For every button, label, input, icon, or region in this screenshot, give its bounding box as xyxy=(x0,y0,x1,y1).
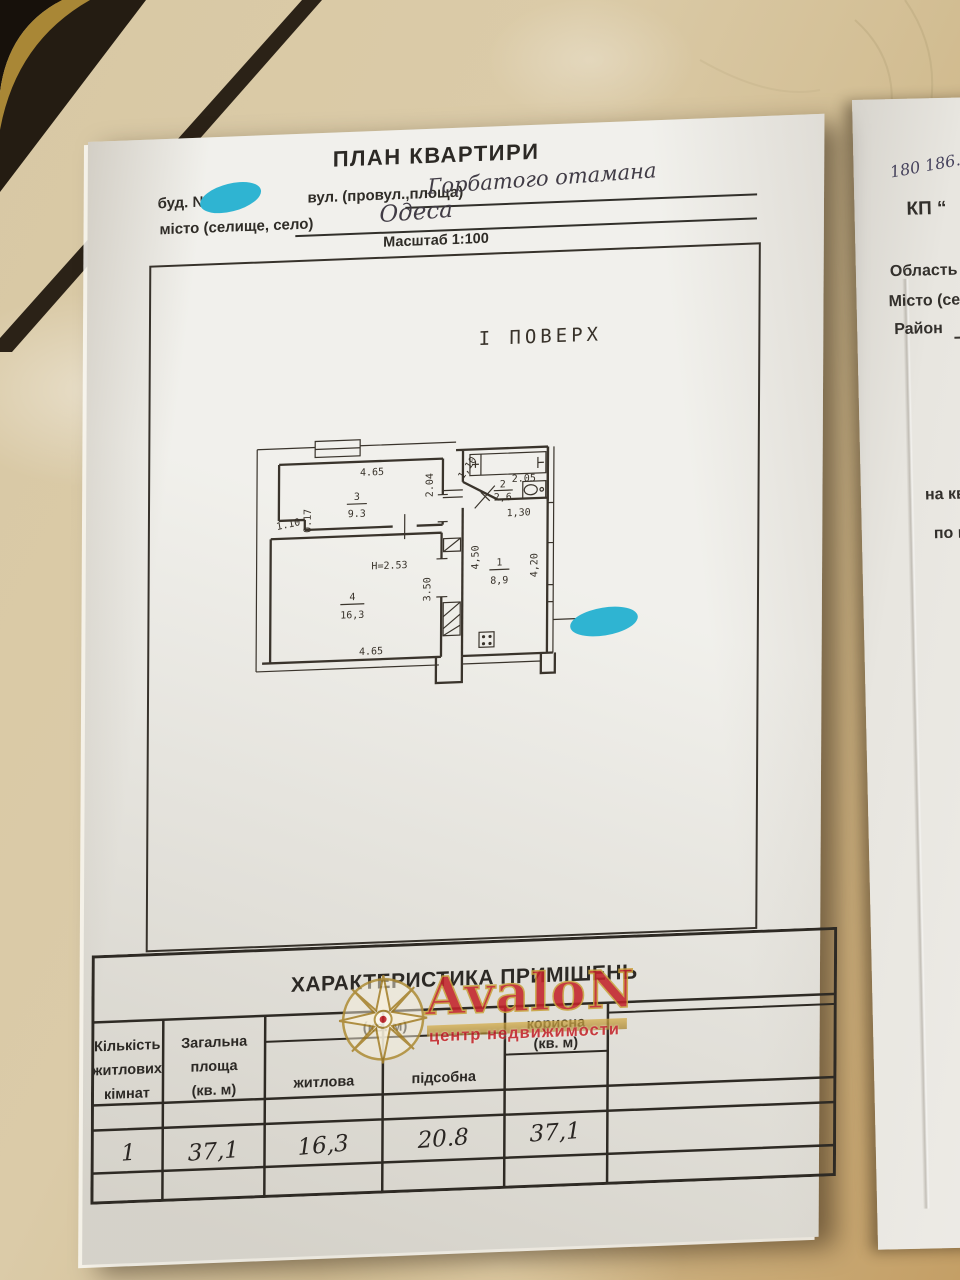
col1-header-line2: житлових xyxy=(91,1061,162,1080)
dim-label: 1,10 xyxy=(456,455,479,481)
handwritten-file-number: 180 186. xyxy=(888,150,960,181)
chimney-stubs xyxy=(436,652,555,683)
stove-burner xyxy=(482,642,485,645)
col3-header: житлова xyxy=(292,1073,355,1091)
floor-plan-drawing: І ПОВЕРХ xyxy=(148,244,759,950)
paper-crease xyxy=(902,279,930,1209)
stove-burner xyxy=(482,635,485,638)
toilet-bowl xyxy=(524,485,537,496)
handwritten-city: Одеса xyxy=(379,197,453,228)
bathtub-fittings xyxy=(472,452,544,476)
col5-header-line1: корисна xyxy=(527,1015,587,1033)
col5-header-line2: (кв. м) xyxy=(534,1035,579,1053)
col1-header-line3: кімнат xyxy=(104,1085,150,1103)
window-room3-midline xyxy=(315,448,360,450)
dim-label: 3.50 xyxy=(422,577,433,602)
room2-number: 2 xyxy=(500,479,506,490)
room2-fraction-line xyxy=(494,490,513,491)
on-apartment-label: на ква xyxy=(925,485,960,504)
district-underline xyxy=(954,335,960,339)
col1-header-line1: Кількість xyxy=(94,1037,160,1056)
toilet-valve xyxy=(540,487,544,491)
district-label: Район xyxy=(894,320,943,339)
city-underline xyxy=(295,217,757,237)
room4-fraction-line xyxy=(340,604,364,605)
stove xyxy=(479,632,494,648)
city-field-label: місто (селище, село) xyxy=(159,215,313,238)
scale-label: Масштаб 1:100 xyxy=(383,231,489,251)
shaft-column-wall xyxy=(462,508,463,656)
vent-shaft-2-hatch xyxy=(443,602,460,636)
floor-label: І ПОВЕРХ xyxy=(479,323,602,350)
characteristics-table: ХАРАКТЕРИСТИКА ПРИМІШЕНЬ Кількість житло… xyxy=(90,927,837,1205)
plan-border-box: І ПОВЕРХ xyxy=(146,242,761,952)
dim-label: 2.04 xyxy=(425,473,436,498)
group-header: (кв. м) xyxy=(363,1018,408,1036)
marble-vein-2 xyxy=(700,60,820,92)
outer-boundary-lines xyxy=(256,439,542,672)
dim-label: 2.05 xyxy=(512,473,536,485)
col2-header-line1: Загальна xyxy=(181,1034,248,1053)
stove-burner xyxy=(488,642,491,645)
room4-number: 4 xyxy=(349,592,355,603)
room1-number: 1 xyxy=(496,557,502,568)
dim-label: 4,20 xyxy=(529,553,540,578)
table-title: ХАРАКТЕРИСТИКА ПРИМІШЕНЬ xyxy=(291,961,638,997)
room1-fraction-line xyxy=(489,569,509,570)
room4-area: 16,3 xyxy=(340,610,364,622)
value-useful-area: 37,1 xyxy=(529,1118,581,1148)
room4-door-marks xyxy=(436,559,447,597)
value-rooms: 1 xyxy=(121,1140,136,1167)
room2-area: 2,6 xyxy=(494,492,512,504)
city-label: Місто (се xyxy=(888,292,960,312)
value-utility-area: 20.8 xyxy=(416,1124,469,1154)
on-street-label: по ву xyxy=(934,524,960,543)
value-living-area: 16,3 xyxy=(297,1130,349,1161)
marker-blob-entrance xyxy=(569,602,640,641)
room1-area: 8,9 xyxy=(490,575,508,587)
photo-of-floor-plan-document: 180 186. КП “ Область Місто (се Район на… xyxy=(0,0,960,1280)
region-label: Область xyxy=(890,262,958,282)
dim-label: 4.65 xyxy=(360,467,384,479)
room3-area: 9.3 xyxy=(348,509,366,521)
dim-label: Н=2.53 xyxy=(371,560,407,572)
corridor-threshold xyxy=(443,490,463,498)
dim-label: 1,30 xyxy=(507,507,531,519)
vent-shaft-1-hatch xyxy=(444,538,461,552)
room3-fraction-line xyxy=(347,504,367,505)
floor-plan-document: ПЛАН КВАРТИРИ буд. № вул. (провул.,площа… xyxy=(82,114,824,1265)
marker-blob-building-number xyxy=(197,176,263,218)
col2-header-line2: площа xyxy=(190,1058,238,1076)
kp-heading: КП “ xyxy=(906,198,947,221)
col2-header-line3: (кв. м) xyxy=(192,1082,237,1100)
stove-burner xyxy=(488,635,491,638)
room3-number: 3 xyxy=(354,492,360,503)
dim-label: 0.17 xyxy=(303,509,314,534)
dim-label: 4.65 xyxy=(359,646,383,658)
col4-header: підсобна xyxy=(412,1069,477,1088)
value-total-area: 37,1 xyxy=(187,1137,239,1167)
dim-label: 4,50 xyxy=(470,545,481,570)
